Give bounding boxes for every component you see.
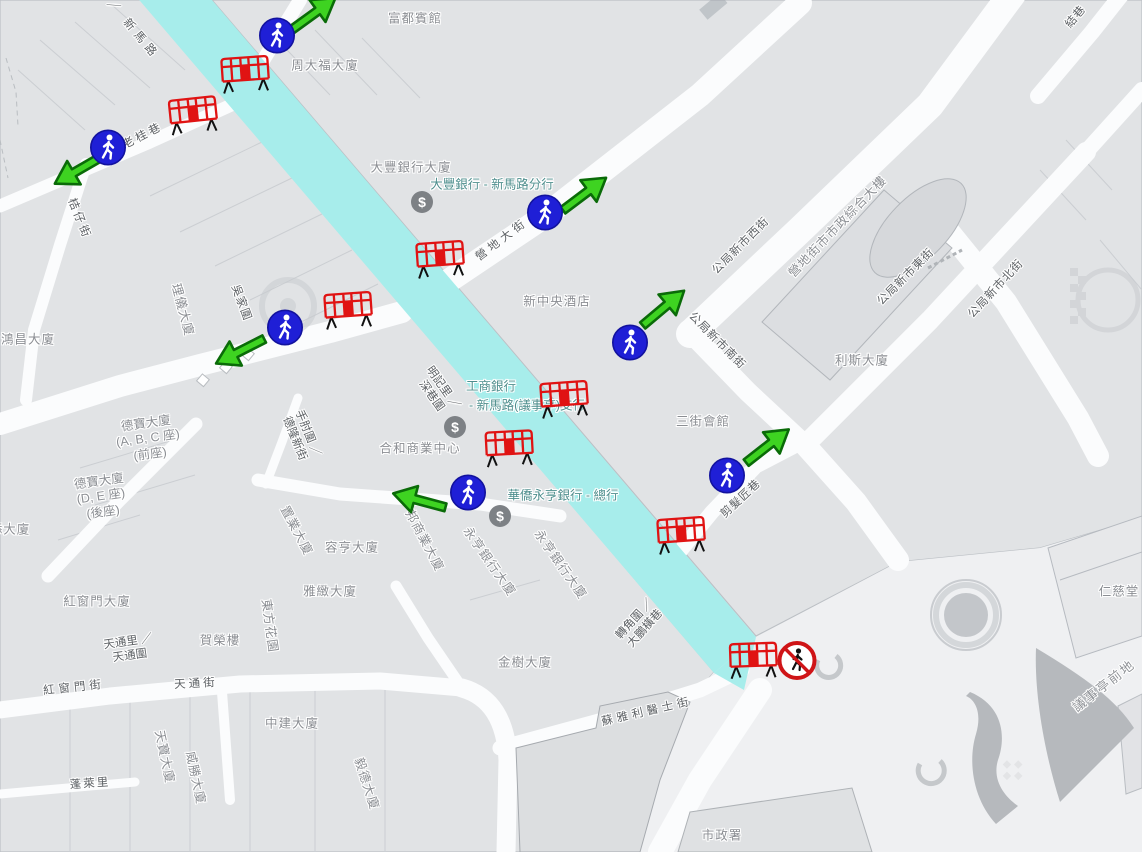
- map-canvas[interactable]: ／ 新馬路老桂巷桔仔街營地大街公局新市西街公局新市南街公局新市東街公局新市北街剪…: [0, 0, 1142, 852]
- basemap: [0, 0, 1142, 852]
